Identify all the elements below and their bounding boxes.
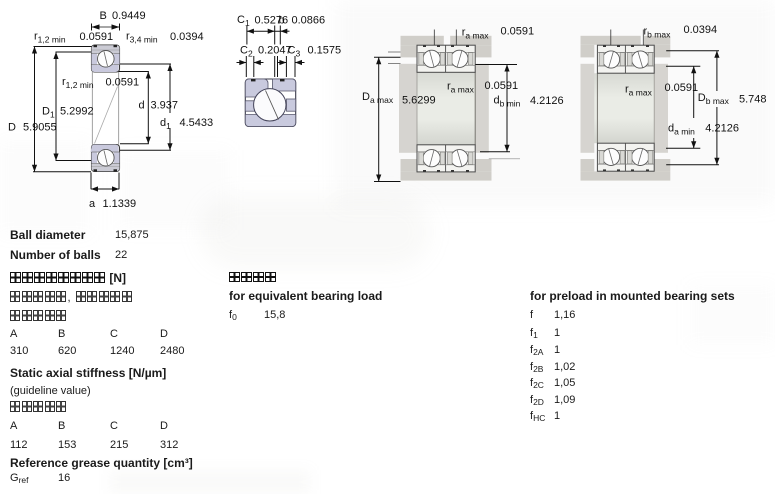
svg-text:0.0591: 0.0591	[485, 80, 519, 92]
svg-text:Db max: Db max	[698, 92, 730, 106]
svg-text:0.0394: 0.0394	[684, 24, 718, 36]
svg-text:0.0866: 0.0866	[292, 15, 326, 27]
svg-text:5.748: 5.748	[739, 93, 767, 105]
svg-text:C3: C3	[288, 44, 301, 58]
svg-text:4.5433: 4.5433	[180, 117, 214, 129]
svg-text:3.937: 3.937	[151, 100, 179, 112]
svg-text:0.0591: 0.0591	[80, 31, 114, 43]
svg-text:5.9055: 5.9055	[23, 122, 57, 134]
svg-text:1.1339: 1.1339	[103, 198, 137, 210]
svg-text:D1: D1	[42, 106, 55, 120]
svg-text:B: B	[100, 10, 107, 22]
svg-text:r1,2 min: r1,2 min	[34, 31, 66, 45]
svg-text:Da max: Da max	[362, 91, 394, 105]
svg-text:0.0591: 0.0591	[665, 82, 699, 94]
svg-text:0.0591: 0.0591	[501, 26, 535, 38]
svg-text:4.2126: 4.2126	[705, 123, 739, 135]
svg-text:0.0591: 0.0591	[106, 77, 140, 89]
svg-text:0.0394: 0.0394	[170, 31, 204, 43]
svg-text:r1,2 min: r1,2 min	[62, 76, 94, 90]
svg-text:5.6299: 5.6299	[402, 94, 436, 106]
svg-text:D: D	[8, 122, 16, 134]
svg-text:C1: C1	[237, 14, 250, 28]
svg-text:5.2992: 5.2992	[60, 106, 94, 118]
svg-text:C2: C2	[240, 44, 253, 58]
svg-text:0.9449: 0.9449	[112, 10, 146, 22]
svg-text:a: a	[89, 198, 96, 210]
svg-text:r3,4 min: r3,4 min	[126, 31, 158, 45]
svg-text:b: b	[279, 15, 285, 27]
svg-text:rb max: rb max	[644, 25, 672, 39]
svg-text:d1: d1	[160, 117, 171, 131]
svg-text:da min: da min	[668, 122, 695, 136]
svg-text:d: d	[139, 100, 145, 112]
svg-text:0.1575: 0.1575	[308, 45, 342, 57]
svg-text:4.2126: 4.2126	[530, 95, 564, 107]
svg-text:ra max: ra max	[462, 26, 490, 40]
